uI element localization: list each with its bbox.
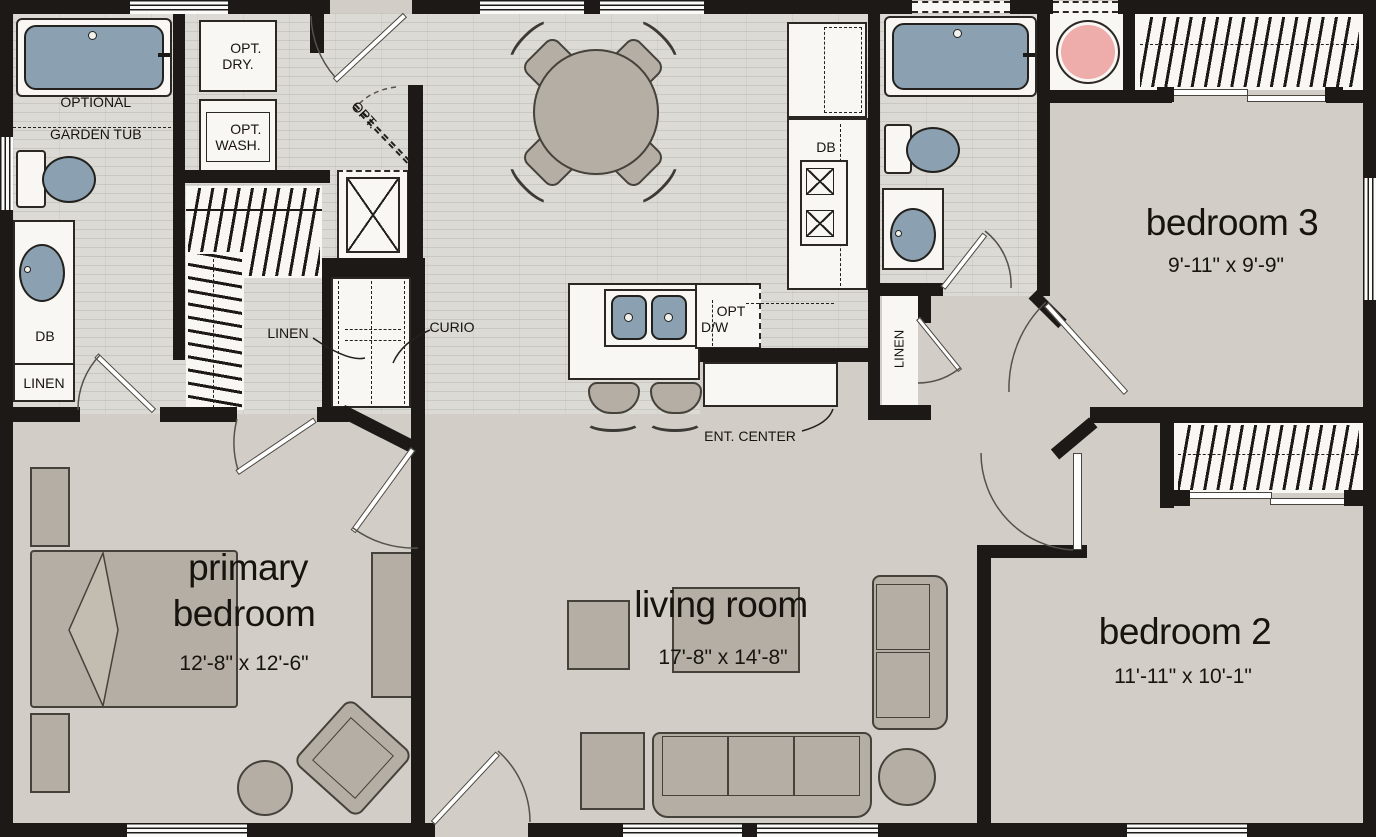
wall [411, 407, 425, 823]
loveseat-cushion-2 [876, 652, 930, 718]
label-optional-garden-tub: OPTIONAL GARDEN TUB [34, 78, 141, 158]
label-opt-dry: OPT.DRY. [215, 24, 262, 88]
label-opt-wash: OPT.WASH. [215, 105, 262, 169]
walkin-closet-left-rod [213, 254, 214, 408]
wall [528, 823, 623, 837]
walkin-closet-left-hangers [188, 254, 242, 408]
window [0, 137, 13, 210]
sofa-cushion-3 [794, 736, 860, 796]
wall [1123, 13, 1135, 103]
label-linen-bath: LINEN [23, 375, 64, 391]
wall [1247, 823, 1376, 837]
wall [868, 13, 880, 291]
wall [880, 283, 943, 296]
sofa-cushion-1 [662, 736, 728, 796]
window [1127, 823, 1247, 837]
door-primary-entry [235, 418, 316, 476]
wall [742, 823, 757, 837]
end-table [580, 732, 645, 810]
label-opt-dw: OPTD/W [701, 287, 745, 351]
wall [310, 13, 324, 53]
label-db-bath: DB [35, 328, 54, 344]
dresser [371, 552, 413, 698]
wall [1157, 87, 1174, 102]
floor-plan: OPTIONAL GARDEN TUB OPT.DRY. OPT.WASH. O… [0, 0, 1376, 837]
wall [0, 823, 127, 837]
tub2-faucet [1023, 53, 1035, 57]
wall [228, 0, 330, 14]
window [623, 823, 742, 837]
round-table [878, 748, 936, 806]
sink1 [19, 244, 65, 302]
toilet2-bowl [906, 127, 960, 173]
wall [322, 258, 425, 277]
room-dims-living: 17'-8" x 14'-8" [658, 646, 787, 670]
wall [1174, 490, 1190, 506]
label-linen-hallway: LINEN [893, 330, 908, 368]
walkin-closet-top-rod [186, 209, 322, 211]
sliding-door [1188, 492, 1272, 499]
room-dims-bedroom2: 11'-11" x 10'-1" [1114, 665, 1252, 689]
closet-divider-dash [371, 281, 372, 404]
curio-shelf-dash1 [345, 329, 401, 330]
sofa-cushion-2 [728, 736, 794, 796]
room-label-primary-line2: bedroom [173, 593, 316, 635]
wall [584, 0, 600, 14]
wall [1160, 420, 1174, 508]
wall [0, 0, 13, 137]
bar-stool-1-arc [585, 412, 641, 432]
basin-dot-right [664, 313, 673, 322]
wall [408, 85, 423, 263]
bedroom2-closet-rod [1178, 454, 1359, 455]
wall [411, 277, 425, 408]
wall [868, 405, 931, 420]
wall [977, 545, 1087, 558]
wall [173, 13, 185, 360]
room-label-bedroom2: bedroom 2 [1099, 611, 1271, 653]
wall [1363, 0, 1376, 178]
wall [1118, 0, 1376, 14]
ent-center [703, 362, 838, 407]
wall [977, 545, 991, 823]
window [600, 0, 704, 14]
window-dashed [912, 1, 1010, 13]
dining-table [533, 49, 659, 175]
wall [1037, 90, 1135, 103]
door-bedroom3 [1044, 303, 1128, 395]
basin-dot-left [624, 313, 633, 322]
window [480, 0, 584, 14]
loveseat-cushion-1 [876, 584, 930, 650]
wall [0, 210, 13, 837]
wall [182, 170, 330, 183]
door-hall-linen [916, 317, 962, 372]
window [127, 823, 247, 837]
tub2-drain [953, 29, 962, 38]
wall [1344, 490, 1363, 506]
wall [0, 0, 130, 14]
bedroom3-closet-rod [1140, 44, 1359, 45]
tub-faucet [158, 53, 170, 57]
door-bedroom2 [1073, 453, 1082, 550]
door-front [431, 751, 500, 825]
bar-stool-2-arc [647, 412, 703, 432]
ottoman [237, 760, 293, 816]
label-linen-hall-closet: LINEN [267, 325, 308, 341]
bedroom3-closet-hangers [1140, 17, 1359, 87]
wall [412, 0, 480, 14]
room-dims-primary: 12'-8" x 12'-6" [179, 652, 308, 676]
curio-closet-dash [404, 281, 405, 404]
sink1-dot [24, 266, 31, 273]
nightstand-2 [30, 713, 70, 793]
wall [878, 823, 1127, 837]
label-ent-center: ENT. CENTER [704, 428, 796, 444]
window [130, 0, 228, 14]
door-primary-angled [351, 447, 416, 533]
wall [704, 0, 912, 14]
side-table [567, 600, 630, 670]
sink2-dot [895, 230, 902, 237]
bedroom2-closet-hangers [1178, 425, 1359, 490]
wall [160, 407, 237, 422]
wall [247, 823, 435, 837]
room-dims-bedroom3: 9'-11" x 9'-9" [1168, 254, 1284, 278]
room-label-bedroom3: bedroom 3 [1146, 202, 1318, 244]
label-db-kitchen: DB [816, 139, 835, 155]
wall [1010, 0, 1053, 14]
window [1363, 178, 1376, 300]
label-curio: CURIO [429, 319, 474, 335]
opt-shower [346, 177, 400, 253]
wall [1037, 13, 1050, 296]
window [757, 823, 878, 837]
toilet1-bowl [42, 156, 96, 203]
water-heater [1056, 20, 1120, 84]
wall [1090, 407, 1376, 423]
wall [1325, 87, 1343, 102]
counter-opt-dash [746, 303, 834, 304]
tub-drain [88, 31, 97, 40]
room-label-primary-line1: primary [188, 547, 308, 589]
nightstand-1 [30, 467, 70, 547]
sliding-door [1172, 89, 1248, 96]
wall [868, 291, 880, 420]
window-dashed [1053, 1, 1118, 13]
burner-1 [806, 168, 834, 195]
sliding-door [1270, 498, 1346, 505]
curio-shelf-dash2 [345, 340, 401, 341]
refrigerator-dash [824, 27, 862, 113]
linen-closet-dash [338, 281, 339, 404]
wall [322, 277, 331, 408]
burner-2 [806, 210, 834, 237]
wall [13, 407, 80, 422]
wall [1363, 300, 1376, 837]
room-label-living: living room [634, 584, 807, 626]
sliding-door [1247, 95, 1326, 102]
